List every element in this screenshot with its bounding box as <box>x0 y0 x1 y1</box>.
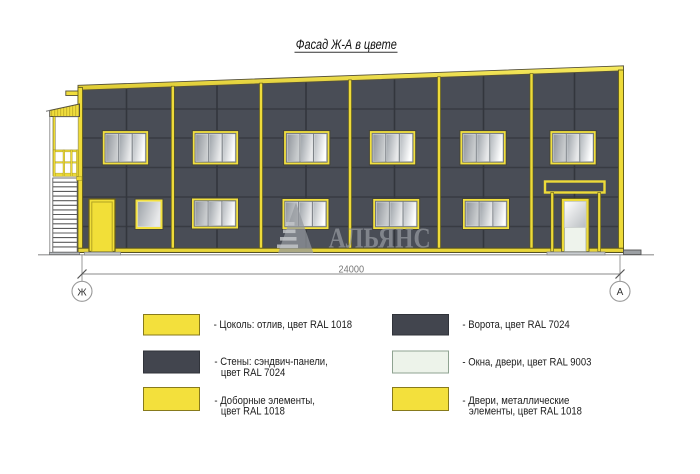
svg-text:А: А <box>617 287 624 298</box>
svg-text:элементы, цвет RAL 1018: элементы, цвет RAL 1018 <box>469 406 582 418</box>
svg-text:- Окна, двери, цвет RAL 9003: - Окна, двери, цвет RAL 9003 <box>462 356 591 368</box>
svg-text:24000: 24000 <box>339 264 365 276</box>
svg-text:АЛЬЯНС: АЛЬЯНС <box>329 224 431 255</box>
svg-text:цвет RAL 7024: цвет RAL 7024 <box>221 367 285 379</box>
svg-text:Фасад Ж-А в цвете: Фасад Ж-А в цвете <box>296 37 397 52</box>
svg-text:Ж: Ж <box>77 287 87 298</box>
svg-text:цвет RAL 1018: цвет RAL 1018 <box>221 405 285 417</box>
svg-text:- Цоколь: отлив, цвет RAL 1018: - Цоколь: отлив, цвет RAL 1018 <box>214 319 353 331</box>
svg-text:- Ворота, цвет RAL 7024: - Ворота, цвет RAL 7024 <box>462 319 569 331</box>
